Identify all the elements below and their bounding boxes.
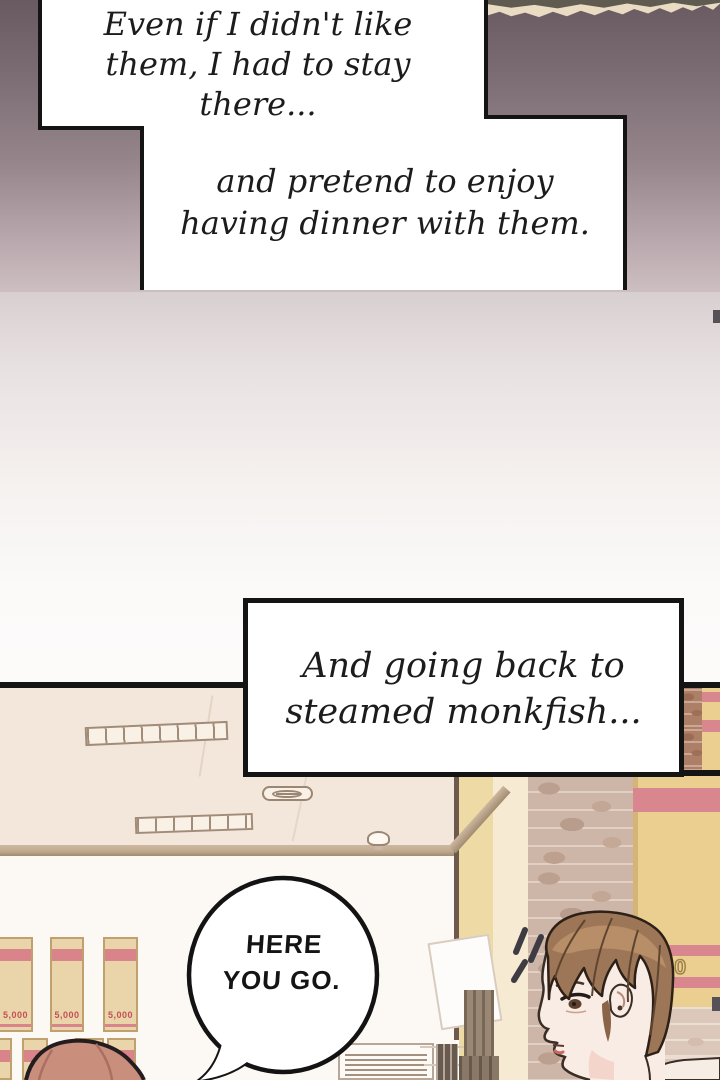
narration-text-1: Even if I didn't like them, I had to sta… <box>48 4 468 124</box>
shelf-box-stripe <box>0 949 31 961</box>
shelf-box <box>0 1038 12 1080</box>
surprise-marks <box>505 920 550 990</box>
shelf-box-line <box>105 1024 136 1027</box>
narration-box-border <box>484 0 488 119</box>
surprise-mark-stroke <box>514 962 525 980</box>
narration-3-line-2: steamed monkfish... <box>285 692 641 732</box>
webtoon-page: Even if I didn't like them, I had to sta… <box>0 0 720 1080</box>
shelf-box-price: 5,000 <box>105 1010 136 1020</box>
shelf-box-stripe <box>105 949 136 961</box>
ceiling-dome-camera <box>367 831 390 846</box>
panel-border-extension <box>682 770 720 776</box>
speech-bubble-text: HERE YOU GO. <box>195 926 370 998</box>
shelf-box: 5,000 <box>50 937 84 1032</box>
narration-text-3: And going back to steamed monkfish... <box>248 643 679 735</box>
narration-1-line-1: Even if I didn't like <box>104 5 413 43</box>
narration-box-border <box>38 0 42 130</box>
narration-box-border <box>623 115 627 290</box>
ceiling-vent <box>262 786 313 801</box>
brown-tower-base <box>459 1056 499 1080</box>
character-eye-pupil <box>572 1002 576 1006</box>
character-lower-lip <box>555 1051 563 1053</box>
vent-line <box>276 793 300 795</box>
sign-stripe <box>702 720 720 732</box>
character-mouth-line <box>553 1045 564 1046</box>
surprise-mark-stroke <box>516 930 525 952</box>
narration-box-border <box>140 126 144 290</box>
dark-frame-piece <box>436 1044 458 1080</box>
corner-sliver-sign <box>702 687 720 771</box>
narration-2-line-2: having dinner with them. <box>180 204 590 242</box>
torn-paper-edge <box>488 0 720 18</box>
narration-1-line-2: them, I had to stay there... <box>106 45 411 123</box>
narration-text-2: and pretend to enjoy having dinner with … <box>160 160 610 244</box>
narration-3-line-1: And going back to <box>302 646 624 686</box>
surprise-mark-stroke <box>531 937 541 960</box>
narration-box-3: And going back to steamed monkfish... <box>243 598 684 777</box>
character-ear-canal <box>618 1006 623 1011</box>
sign-stripe <box>702 692 720 702</box>
narration-box-border <box>38 126 144 130</box>
shelf-box-price: 5,000 <box>52 1010 82 1020</box>
page-edge-marker-top <box>713 310 720 323</box>
narration-2-line-1: and pretend to enjoy <box>216 162 553 200</box>
ceiling-beam <box>0 845 456 856</box>
shelf-box-stripe <box>52 949 82 961</box>
shelf-box-price: 5,000 <box>0 1010 31 1020</box>
shelf-box: 5,000 <box>0 937 33 1032</box>
narration-box-border <box>484 115 627 119</box>
auburn-hair-fill <box>26 1041 144 1080</box>
dome-camera-stem <box>374 846 383 850</box>
shelf-box-line <box>0 1024 31 1027</box>
shelf-box-stripe <box>0 1050 10 1062</box>
speech-line-1: HERE <box>245 929 323 959</box>
auburn-hair-head <box>18 1035 153 1080</box>
shelf-box-line <box>52 1024 82 1027</box>
page-edge-marker-bottom <box>712 997 720 1011</box>
sign-stripe <box>633 788 720 812</box>
speech-line-2: YOU GO. <box>222 965 342 995</box>
shelf-box: 5,000 <box>103 937 138 1032</box>
corner-sliver-bricks <box>682 687 702 771</box>
